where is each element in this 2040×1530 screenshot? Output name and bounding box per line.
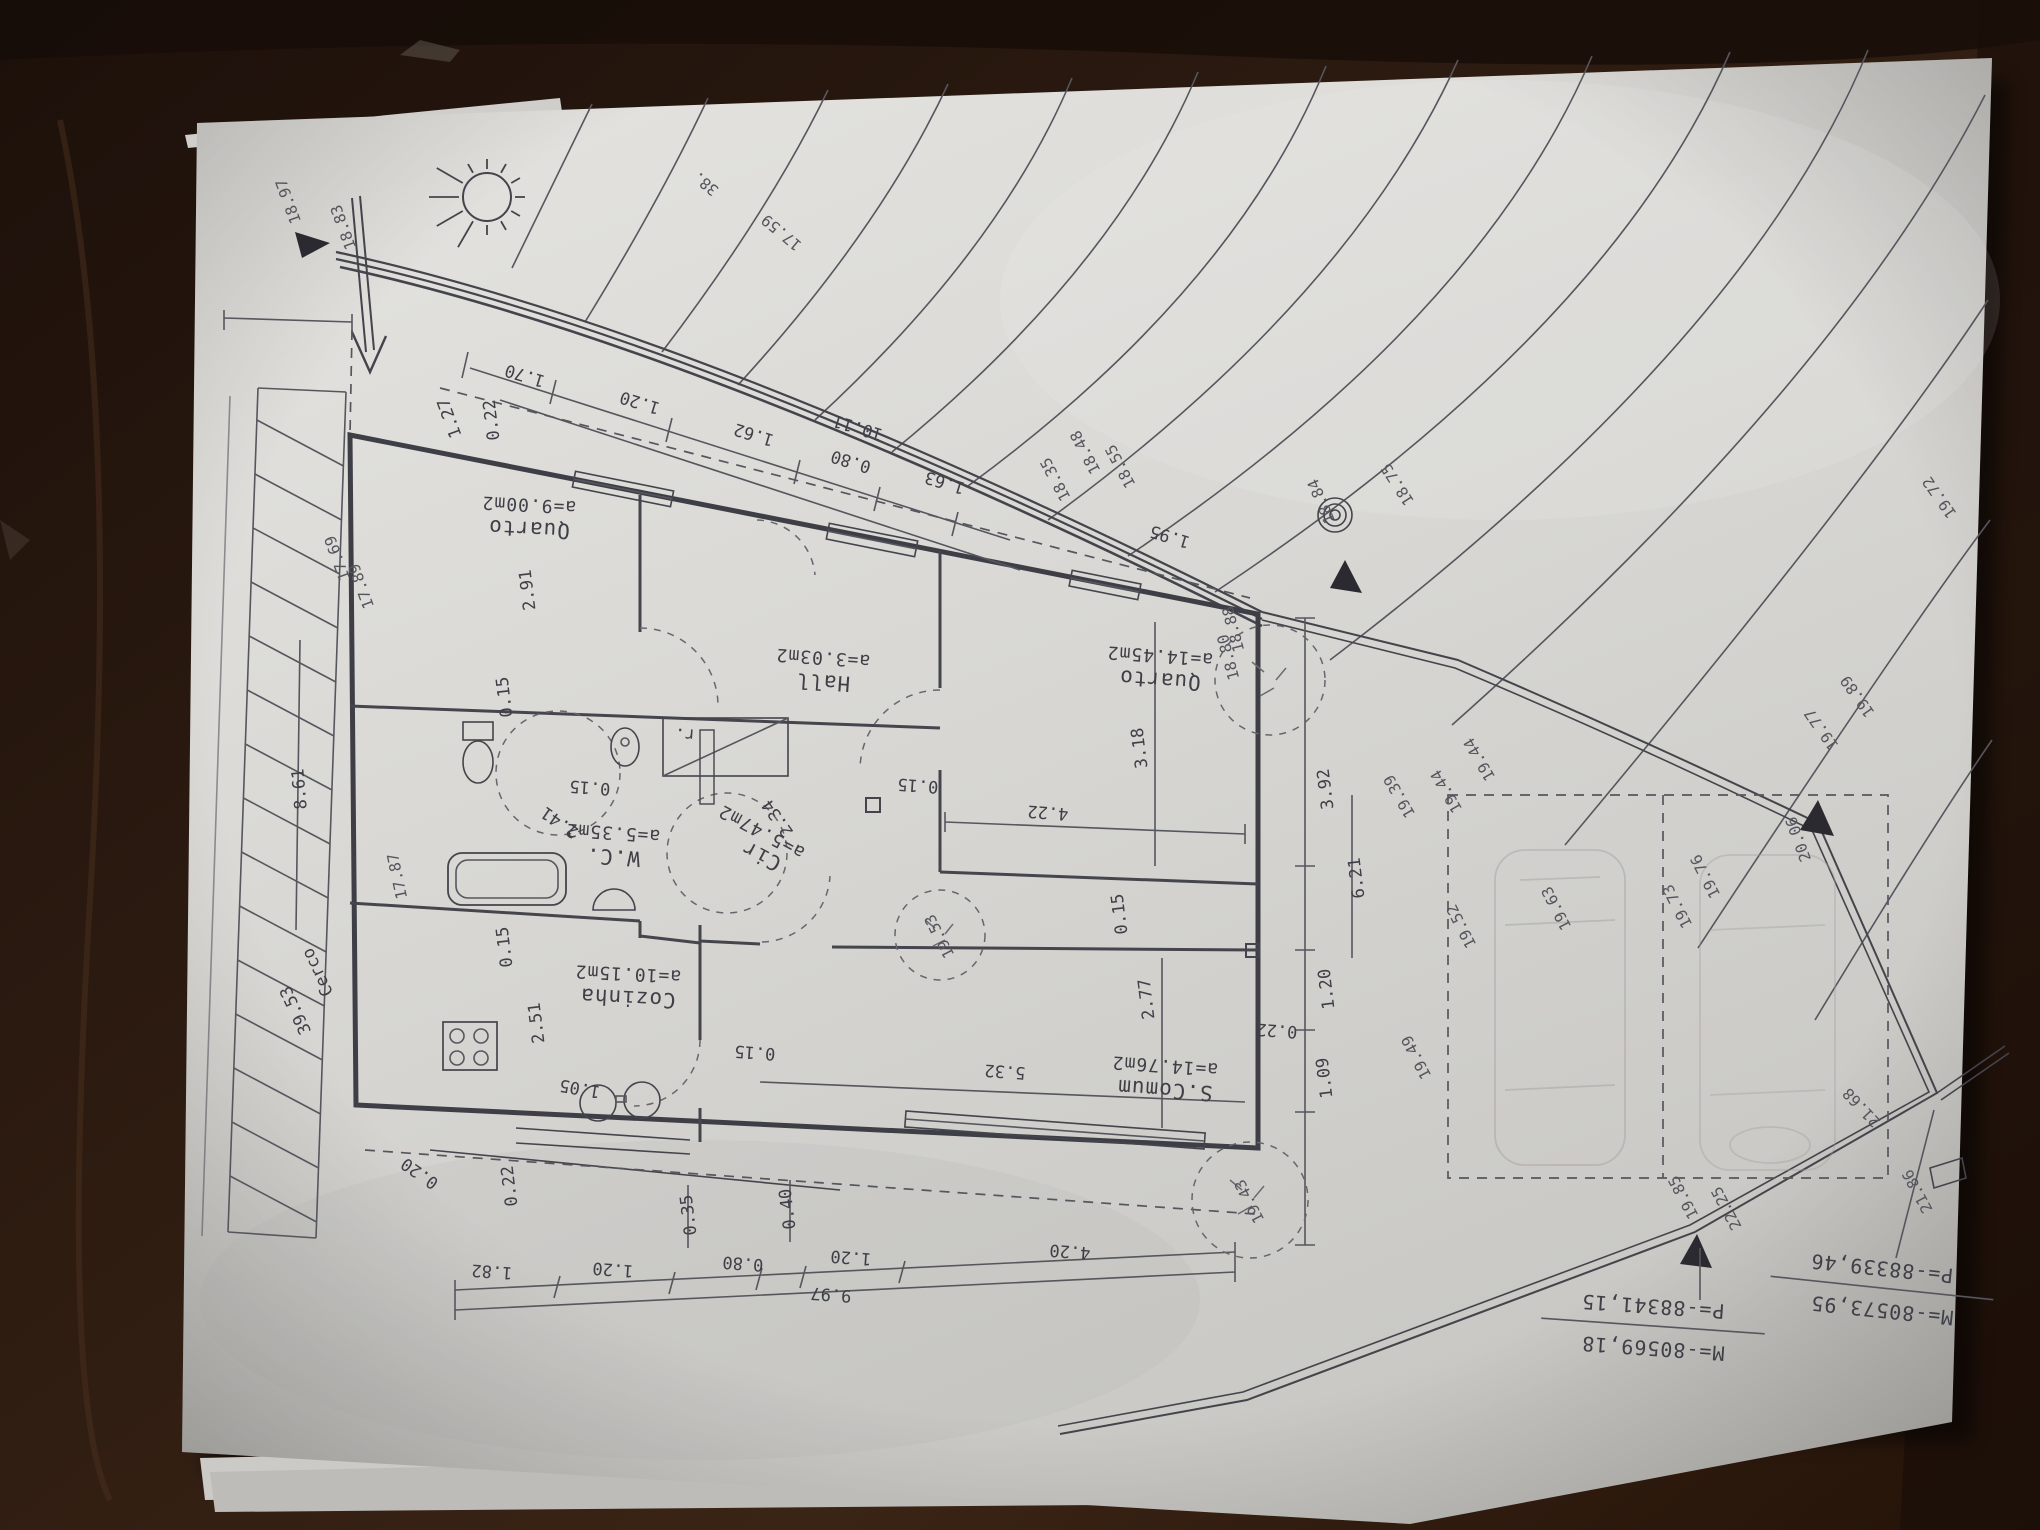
dimension-label: 0.80 <box>722 1252 764 1275</box>
paper-sheet <box>182 58 2008 1524</box>
dimension-label: 4.20 <box>1049 1240 1091 1263</box>
dimension-label: r. <box>674 723 696 744</box>
room-name-label: Hall <box>795 668 851 696</box>
dimension-label: 1.20 <box>592 1258 634 1281</box>
dimension-label: 0.15 <box>569 776 611 799</box>
room-name-label: Cozinha <box>580 984 677 1013</box>
dimension-label: 0.22 <box>1256 1019 1298 1042</box>
plan-photo-canvas: Quartoa=9.00m2Halla=3.03m2Quartoa=14.45m… <box>0 0 2040 1530</box>
dimension-label: 9.97 <box>810 1283 852 1306</box>
dimension-label: 1.82 <box>471 1260 513 1283</box>
dimension-label: 0.15 <box>734 1041 776 1064</box>
dimension-label: 1.20 <box>830 1246 872 1269</box>
dimension-label: 4.22 <box>1027 801 1069 824</box>
room-name-label: W.C. <box>585 843 641 871</box>
dimension-label: 5.32 <box>984 1060 1026 1083</box>
dimension-label: 0.15 <box>897 774 939 797</box>
photo-of-floor-plan: { "scene": { "description_labels": [], "… <box>0 0 2040 1530</box>
room-name-label: Quarto <box>487 515 570 543</box>
dimension-label: 8.61 <box>288 768 311 811</box>
